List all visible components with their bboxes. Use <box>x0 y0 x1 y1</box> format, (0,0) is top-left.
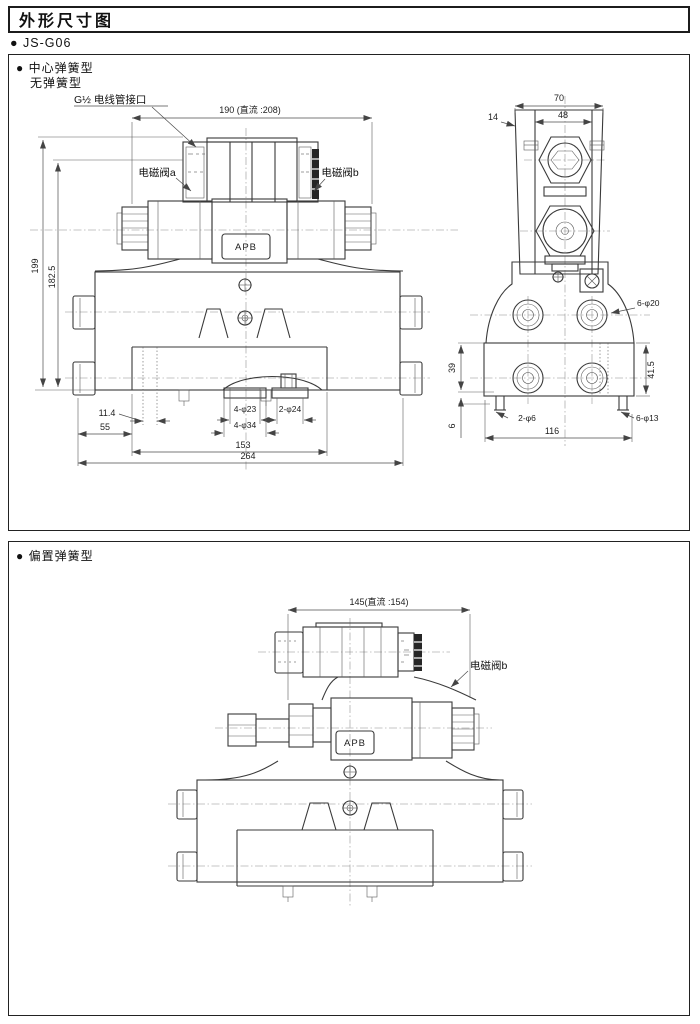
nameplate-text: APB <box>235 242 257 253</box>
socket-screw-icons <box>513 300 607 393</box>
dim-width-core: 48 <box>558 110 568 120</box>
solenoid-end-dashes <box>401 641 409 662</box>
dim-width-bottom: 116 <box>545 426 559 436</box>
side-view-dimensions: 70 48 14 6-φ20 39 41.5 6 2-φ6 6-φ13 <box>447 93 660 442</box>
dim-height-body: 182.5 <box>47 266 57 289</box>
dim-width-total: 264 <box>240 451 255 461</box>
front-view-main-body <box>73 259 422 425</box>
dim-width-inner: 153 <box>235 440 250 450</box>
conduit-port-dashes-right <box>301 154 309 172</box>
dim-height-right: 41.5 <box>646 361 656 379</box>
dim-overall-width-2: 145(直流 :154) <box>349 596 408 607</box>
connector-dashes <box>278 641 296 662</box>
side-view-body <box>484 262 634 410</box>
catalog-page: 外形尺寸图 ● JS-G06 ● 中心弹簧型 无弹簧型 ● 偏置弹簧型 <box>0 0 700 1024</box>
conduit-label: G½ 电线管接口 <box>74 93 146 106</box>
dim-holes-b: 2-φ24 <box>279 404 302 414</box>
dim-width-top: 70 <box>554 93 564 103</box>
dim-holes-c: 4-φ34 <box>234 420 257 430</box>
dim-overall-width: 190 (直流 :208) <box>219 104 281 115</box>
front-view-solenoid-row: APB <box>117 199 376 263</box>
solenoid-b-label: 电磁阀b <box>321 166 358 179</box>
offset-view-pilot <box>275 623 476 700</box>
dim-holes-feet: 2-φ6 <box>518 413 536 423</box>
conduit-port-dashes-left <box>188 154 205 172</box>
dim-offset-left: 55 <box>100 422 110 432</box>
front-view-centerlines <box>30 128 458 470</box>
side-view-pilot <box>515 110 604 274</box>
solenoid-a-label: 电磁阀a <box>138 166 175 179</box>
dim-holes-top: 6-φ20 <box>637 298 660 308</box>
dim-holes-a: 4-φ23 <box>234 404 257 414</box>
solenoid-b-label-2: 电磁阀b <box>470 659 507 672</box>
dim-offset-small: 11.4 <box>99 408 116 418</box>
front-view-dimensions: 199 182.5 190 (直流 :208) G½ 电线管接口 电磁阀a 电磁… <box>30 93 403 466</box>
dim-holes-bottom: 6-φ13 <box>636 413 659 423</box>
offset-view-main-row: APB <box>228 698 479 760</box>
dim-height-total: 199 <box>30 258 40 273</box>
dim-height-foot: 6 <box>447 423 457 428</box>
dim-height-block: 39 <box>447 363 457 373</box>
dim-offset-side: 14 <box>488 112 498 122</box>
dimension-drawing: APB <box>0 0 700 1024</box>
front-view-pilot-terminal-box <box>183 138 319 202</box>
nameplate-text-2: APB <box>344 738 366 749</box>
